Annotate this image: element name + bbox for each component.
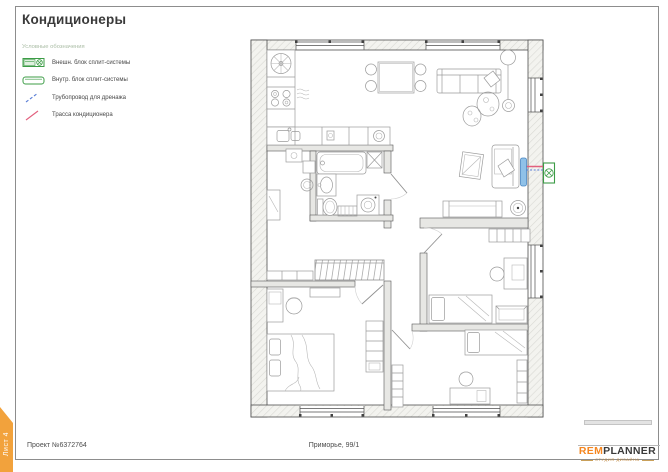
dresser xyxy=(310,288,340,297)
plants-icon xyxy=(463,92,499,126)
desk-chair-icon xyxy=(459,372,473,386)
wall-clock-icon xyxy=(511,201,526,216)
window-top-kitchen xyxy=(295,41,364,50)
outdoor-unit xyxy=(544,163,555,183)
bathroom xyxy=(317,152,382,216)
towel-rack-icon xyxy=(338,206,357,216)
remplanner-logo[interactable]: REMPLANNER студия дизайна xyxy=(579,446,656,462)
chair-icon xyxy=(366,64,377,75)
console-cabinet xyxy=(267,190,280,220)
wall-shelf xyxy=(286,149,302,162)
bedroom-kids-2 xyxy=(392,330,527,407)
shelving-unit xyxy=(366,321,383,372)
floor-plan xyxy=(0,0,668,472)
vent-fan-icon xyxy=(271,54,291,74)
bedroom-kids-1 xyxy=(429,229,530,323)
door-kids-room-2 xyxy=(392,330,413,349)
chair-icon xyxy=(415,64,426,75)
hallway xyxy=(267,149,315,220)
washing-machine-icon xyxy=(357,195,379,215)
logo-text-rem: REM xyxy=(579,445,603,457)
dining-area xyxy=(366,62,427,93)
living-room xyxy=(437,50,526,217)
towel-dryer-icon xyxy=(367,152,382,168)
single-bed xyxy=(465,330,527,355)
wall-shelf xyxy=(489,229,530,242)
bench xyxy=(443,201,502,217)
sheet: Лист 4 Кондиционеры Условные обозначения… xyxy=(0,0,668,472)
wardrobe xyxy=(267,260,384,280)
desk xyxy=(490,258,527,289)
door-main-bedroom xyxy=(355,285,383,304)
armchair xyxy=(492,145,519,188)
double-bed xyxy=(267,334,334,391)
desk xyxy=(267,289,283,322)
logo-subtitle: студия дизайна xyxy=(595,458,640,462)
window-right-upper xyxy=(529,78,543,113)
bathtub-icon xyxy=(317,152,366,174)
footer-address: Приморье, 99/1 xyxy=(0,442,668,449)
hall-cabinet xyxy=(267,271,313,280)
desk xyxy=(450,372,490,404)
single-bed xyxy=(429,295,492,323)
sofa xyxy=(437,69,501,93)
storage-bench xyxy=(496,306,527,323)
door-bathroom xyxy=(391,174,407,199)
side-table xyxy=(303,161,315,173)
logo-dash-right xyxy=(642,460,654,461)
desk-chair-icon xyxy=(286,298,302,314)
logo-text-planner: PLANNER xyxy=(603,445,656,457)
window-top-living xyxy=(425,41,500,50)
chair-icon xyxy=(366,81,377,92)
picture-frame xyxy=(459,152,483,180)
window-bottom-kidsroom xyxy=(432,406,500,417)
shelf-right xyxy=(517,360,527,403)
door-kids-room-1 xyxy=(424,228,442,253)
window-bottom-bedroom xyxy=(299,406,364,417)
chair-icon xyxy=(415,81,426,92)
steam-marks xyxy=(297,89,309,99)
logo-dash-left xyxy=(581,460,593,461)
desk-chair-icon xyxy=(490,267,504,281)
window-right-lower xyxy=(529,245,543,299)
sink-icon xyxy=(317,174,336,196)
floor-lamp-icon xyxy=(501,50,516,112)
toilet-icon xyxy=(318,199,338,216)
bookshelf xyxy=(392,365,403,407)
bedroom-main xyxy=(267,288,383,391)
indoor-unit xyxy=(521,158,527,186)
